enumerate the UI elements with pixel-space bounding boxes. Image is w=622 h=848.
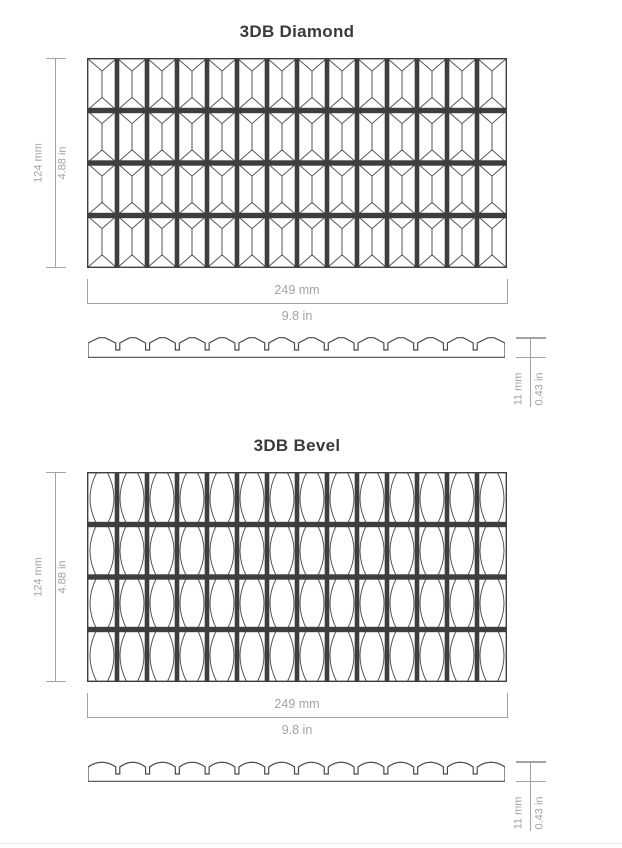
width-label-mm: 249 mm — [87, 698, 507, 711]
height-label-mm: 124 mm — [34, 143, 45, 183]
profile-view-row: 11 mm 0.43 in — [0, 761, 622, 841]
width-dimension: 249 mm 9.8 in — [0, 279, 622, 324]
thickness-label-in: 0.43 in — [535, 796, 546, 829]
height-dimension-tick-bottom — [46, 681, 66, 682]
side-profile-bevel — [88, 761, 505, 782]
width-dimension-line — [87, 717, 508, 718]
width-label-in: 9.8 in — [87, 724, 507, 737]
section-title: 3DB Bevel — [87, 436, 507, 456]
thickness-label-mm: 11 mm — [514, 797, 525, 830]
thickness-dimension-line — [530, 337, 531, 407]
side-profile-diamond — [88, 337, 505, 358]
height-dimension-tick-top — [46, 58, 66, 59]
spec-sheet: 3DB Diamond 124 mm 4.88 in 249 mm 9.8 in… — [0, 0, 622, 848]
profile-view-row: 11 mm 0.43 in — [0, 337, 622, 417]
width-label-mm: 249 mm — [87, 284, 507, 297]
section-title: 3DB Diamond — [87, 22, 507, 42]
front-view-diamond-panel — [87, 58, 507, 268]
height-label-in: 4.88 in — [58, 560, 69, 593]
height-label-in: 4.88 in — [58, 146, 69, 179]
height-dimension-tick-top — [46, 472, 66, 473]
thickness-label-mm: 11 mm — [514, 373, 525, 406]
width-dimension-line — [87, 303, 508, 304]
page-bottom-rule — [0, 843, 622, 844]
front-view-bevel-panel — [87, 472, 507, 682]
height-dimension-tick-bottom — [46, 267, 66, 268]
width-dimension: 249 mm 9.8 in — [0, 693, 622, 738]
section-diamond: 3DB Diamond 124 mm 4.88 in 249 mm 9.8 in… — [0, 0, 622, 414]
thickness-dimension-line — [530, 761, 531, 831]
height-label-mm: 124 mm — [34, 557, 45, 597]
width-label-in: 9.8 in — [87, 310, 507, 323]
section-bevel: 3DB Bevel 124 mm 4.88 in 249 mm 9.8 in 1… — [0, 414, 622, 828]
thickness-label-in: 0.43 in — [535, 372, 546, 405]
